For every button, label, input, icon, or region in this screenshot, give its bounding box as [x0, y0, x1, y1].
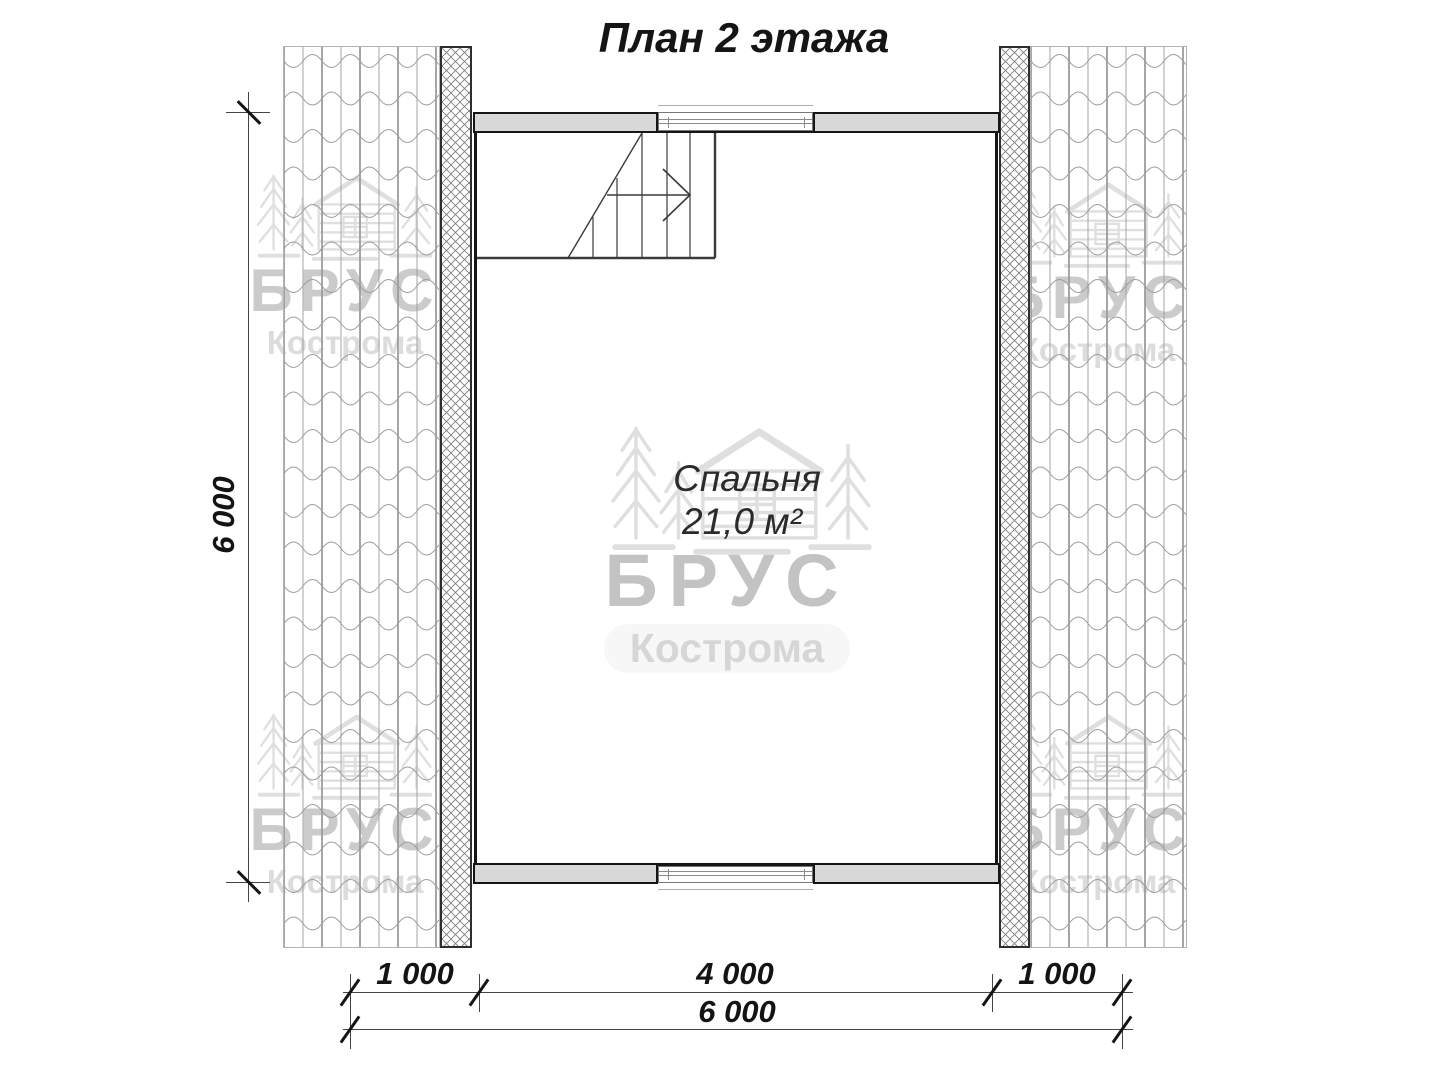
dim-label-bottom-total: 6 000 — [698, 994, 776, 1030]
window-bottom — [658, 866, 813, 883]
dim-line-bottom-segments — [343, 992, 1133, 993]
gable-wall-left — [440, 46, 472, 948]
roof-tiles-pattern — [1031, 47, 1186, 947]
dim-label-height: 6 000 — [206, 476, 242, 554]
floor-plan-canvas: План 2 этажа БРУС Кострома БРУС Кострома… — [0, 0, 1440, 1080]
room-area: 21,0 м² — [682, 501, 802, 543]
staircase — [477, 133, 717, 260]
roof-strip-left — [283, 46, 440, 948]
watermark-brand: БРУС — [604, 544, 849, 618]
watermark-center: БРУС Кострома — [567, 548, 887, 673]
gable-wall-right — [999, 46, 1030, 948]
wall-top-left-segment — [473, 112, 658, 133]
roof-tiles-pattern — [284, 47, 439, 947]
crosshatch-pattern — [442, 48, 470, 946]
window-top — [658, 112, 813, 131]
dim-label-bottom-left: 1 000 — [376, 956, 454, 992]
dim-label-bottom-middle: 4 000 — [696, 956, 774, 992]
wall-bottom-left-segment — [473, 863, 658, 884]
roof-strip-right — [1030, 46, 1187, 948]
wall-top-right-segment — [813, 112, 1000, 133]
page-title: План 2 этажа — [599, 14, 889, 62]
stair-direction-arrow-icon — [607, 169, 690, 221]
watermark-city: Кострома — [604, 624, 851, 673]
window-top-outer-line — [658, 105, 813, 106]
window-bottom-outer-line — [658, 889, 813, 890]
dim-label-bottom-right: 1 000 — [1018, 956, 1096, 992]
wall-bottom-right-segment — [813, 863, 1000, 884]
room-label: Спальня — [673, 458, 821, 500]
crosshatch-pattern — [1001, 48, 1028, 946]
dim-vertical-line — [248, 92, 249, 902]
